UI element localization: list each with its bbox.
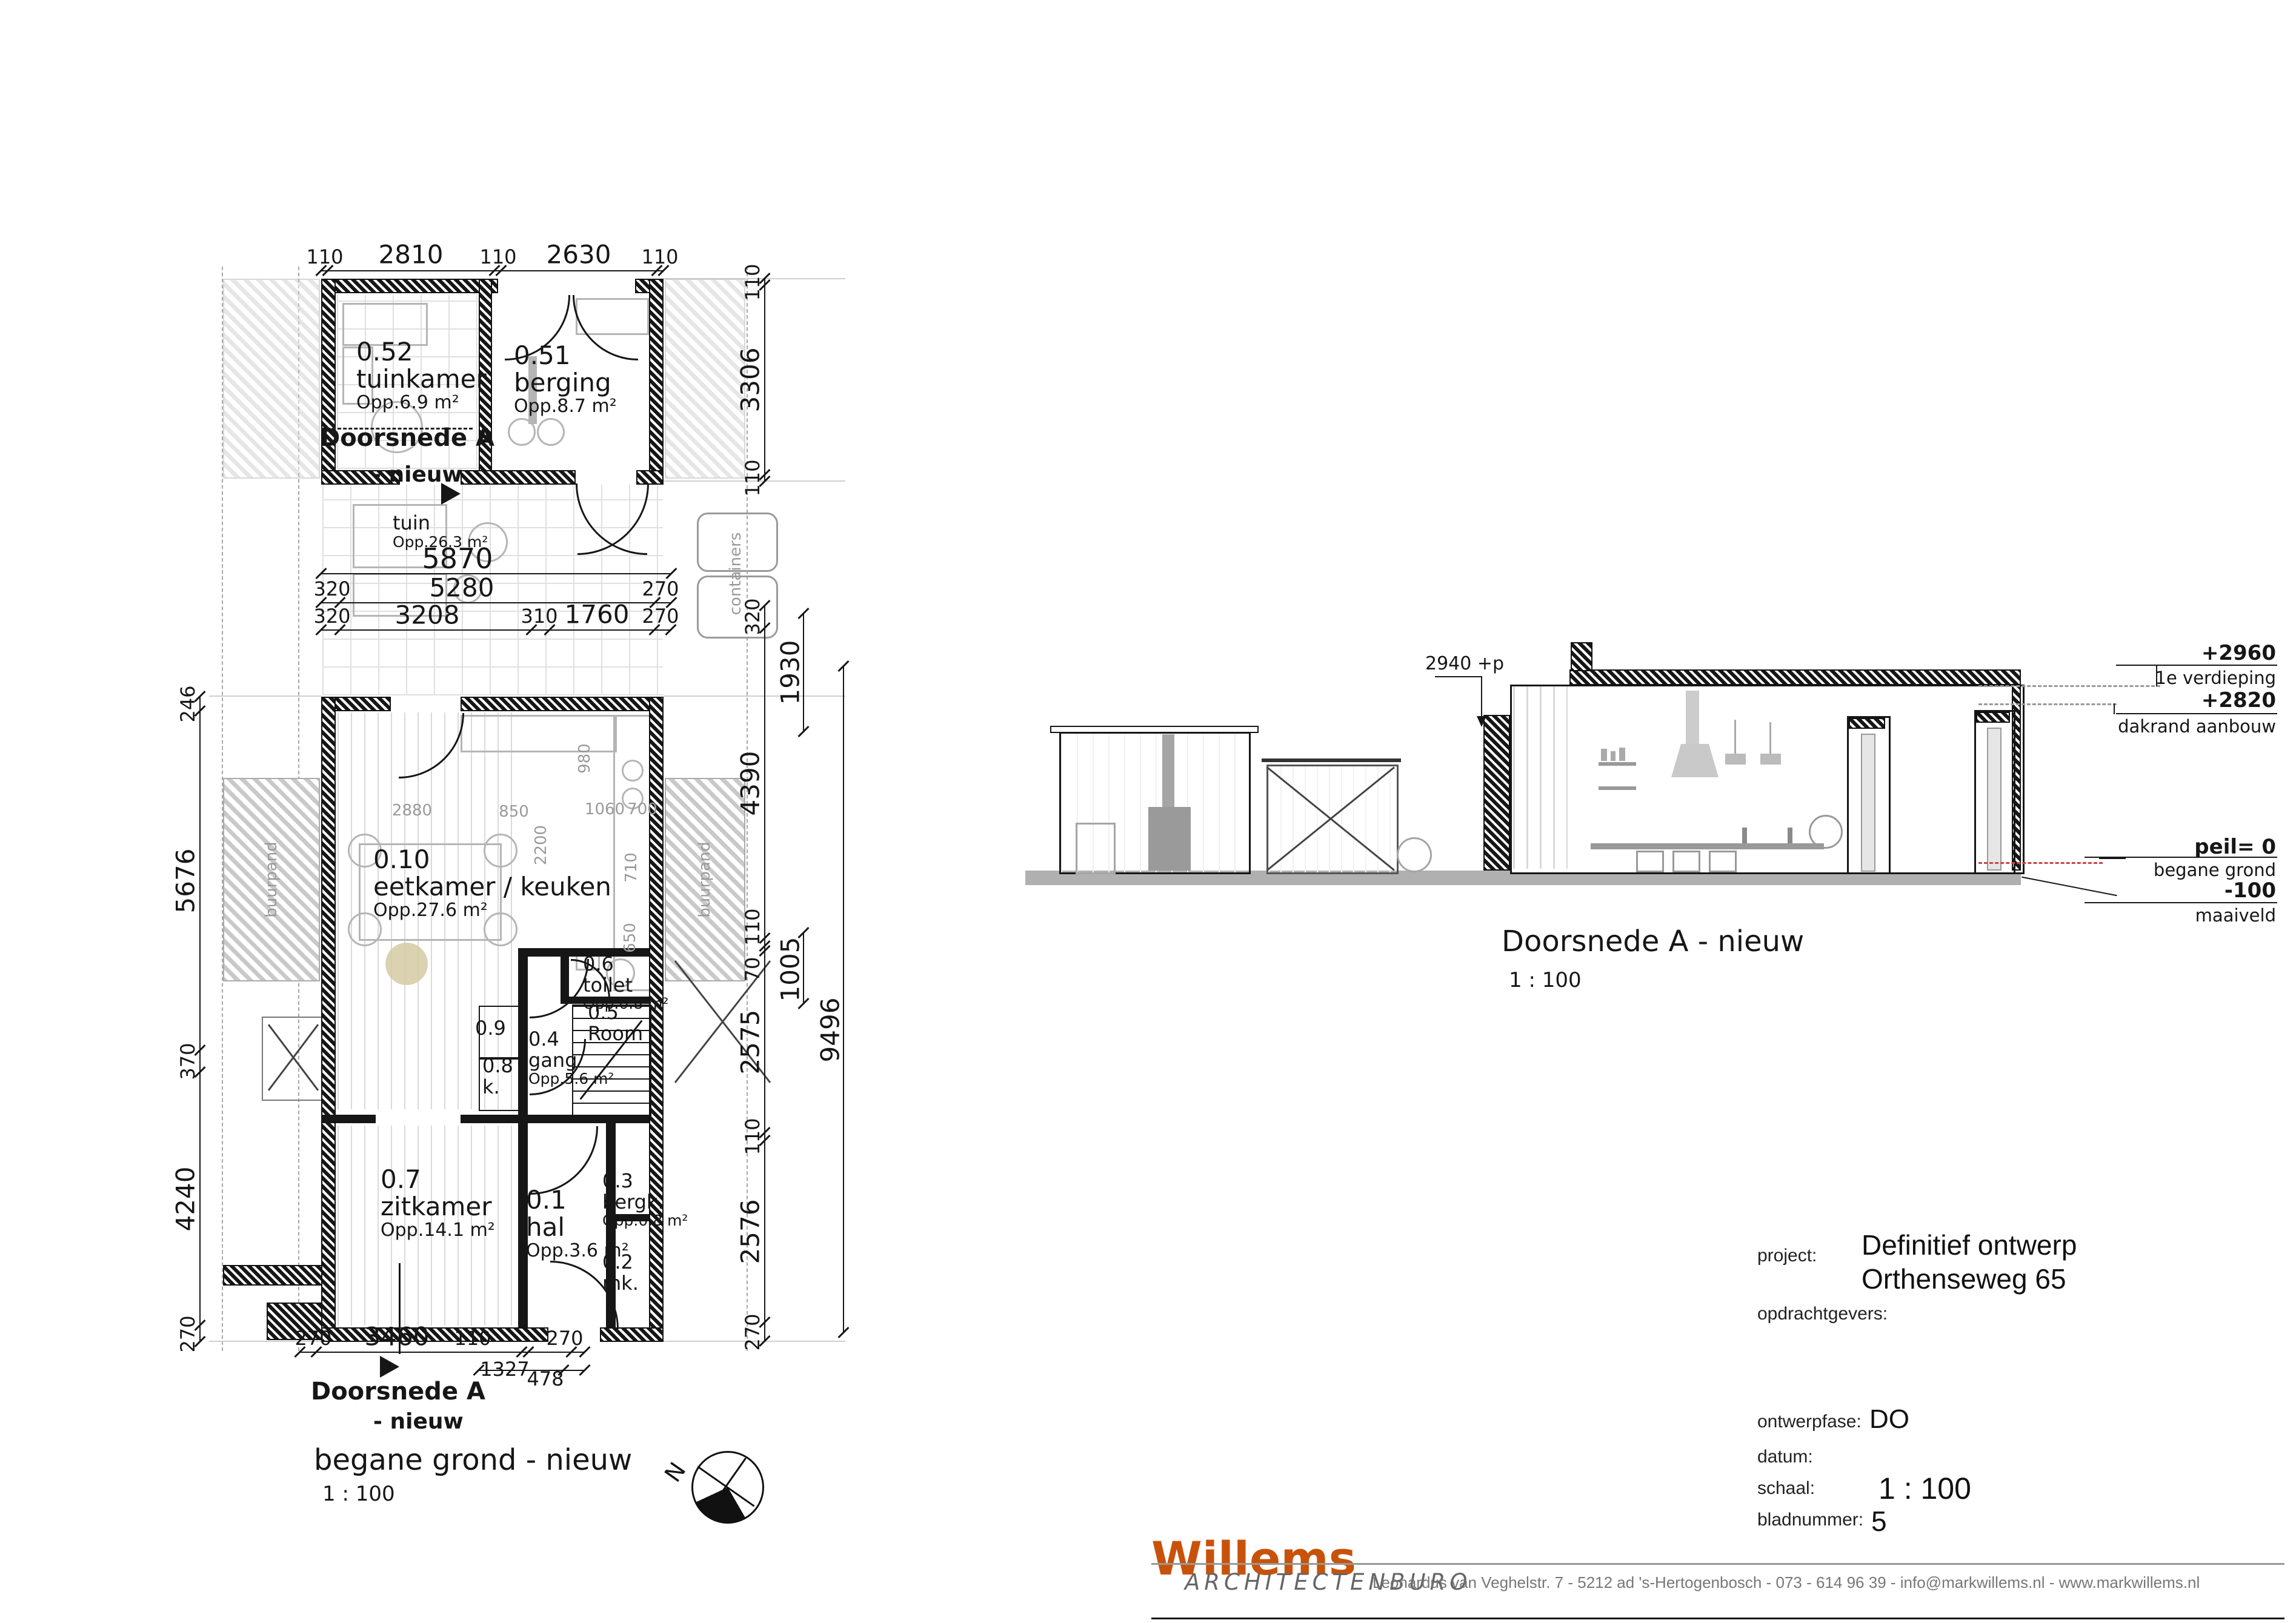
dim: 110 — [741, 1118, 764, 1155]
date-label: datum: — [1757, 1447, 1813, 1467]
stove-pipe — [1162, 734, 1174, 812]
buurpand-right-label: buurpand — [696, 841, 714, 918]
room-label-eetkamer: 0.10 eetkamer / keuken Opp.27.6 m² — [373, 846, 611, 920]
dim: 110 — [454, 1327, 491, 1350]
clients-label: opdrachtgevers: — [1757, 1304, 1888, 1324]
room-id: 0.8 — [482, 1055, 513, 1077]
room-id: 0.6 — [583, 954, 668, 975]
leader-line — [1481, 676, 1482, 717]
dim: 110 — [741, 459, 764, 496]
room-name: bergk. — [602, 1192, 688, 1213]
wall — [321, 279, 336, 485]
dim-gray: 710 — [622, 852, 641, 883]
stool — [1709, 851, 1737, 872]
level-value: +2820 — [2109, 688, 2276, 712]
sheet-label: bladnummer: — [1757, 1510, 1863, 1530]
level-label: 1e verdieping — [2109, 668, 2276, 688]
dim-tick — [516, 1346, 527, 1358]
dim: 110 — [306, 245, 343, 268]
dim: 9496 — [816, 998, 845, 1063]
wall — [321, 697, 336, 1342]
room-label-zitkamer: 0.7 zitkamer Opp.14.1 m² — [381, 1166, 495, 1240]
shed-roof — [1262, 758, 1401, 762]
room-label-gang: 0.4 gang Opp.5.6 m² — [528, 1029, 614, 1087]
dim: 270 — [741, 1313, 764, 1350]
wall — [461, 697, 664, 711]
dim: 5280 — [430, 573, 494, 603]
room-name: berging — [514, 369, 617, 396]
hood-duct — [1686, 691, 1699, 744]
room-label-tuinkamer: 0.52 tuinkamer Opp.6.9 m² — [356, 338, 487, 413]
section-marker-label2: - nieuw — [373, 1409, 464, 1434]
room-id: 0.5 — [588, 1002, 643, 1023]
dim: 320 — [313, 577, 350, 600]
wall — [461, 470, 576, 485]
dim: 1327 — [480, 1358, 529, 1381]
dim-line — [321, 573, 671, 574]
dim: 3460 — [365, 1322, 430, 1352]
room-name: tuin — [393, 513, 488, 534]
extractor-hood — [1671, 744, 1719, 777]
buurpand-left-label: buurpand — [262, 841, 281, 918]
dim: 320 — [741, 598, 764, 635]
bottle — [1611, 751, 1616, 761]
pendant-lamp — [1760, 754, 1781, 765]
stool — [1672, 851, 1700, 872]
section-arrow-icon — [380, 1356, 399, 1378]
dim: 270 — [642, 577, 679, 600]
dim: 3208 — [395, 600, 460, 630]
plan-scale: 1 : 100 — [322, 1482, 395, 1506]
shelf — [1599, 762, 1636, 766]
level-line-2820 — [1978, 703, 2117, 705]
section-marker-label: Doorsnede A — [320, 424, 494, 452]
dim: 2576 — [736, 1200, 765, 1264]
level-line-peil — [1978, 862, 2103, 864]
room-name: toilet — [583, 975, 668, 996]
room-name: eetkamer / keuken — [373, 873, 611, 900]
room-name: k. — [482, 1077, 513, 1098]
neighbour-wall — [223, 279, 320, 479]
dim: 1760 — [565, 600, 630, 629]
stool — [1636, 851, 1664, 872]
room-name: gang — [528, 1050, 614, 1071]
dim: 110 — [641, 245, 678, 268]
leader-arrow-icon — [1477, 716, 1486, 727]
room-area: Opp.14.1 m² — [381, 1221, 495, 1240]
dim: 110 — [741, 908, 764, 945]
dim: 478 — [527, 1367, 564, 1390]
dim-gray: 700 — [627, 800, 657, 818]
north-label: N — [659, 1458, 691, 1487]
dim: 370 — [176, 1043, 199, 1080]
neighbour-wall — [665, 279, 745, 479]
dim-tick — [837, 1327, 849, 1338]
dim: 110 — [479, 245, 516, 268]
room-id: 0.3 — [602, 1170, 688, 1192]
cut-wall — [1483, 715, 1510, 871]
project-value-line1: Definitief ontwerp — [1862, 1229, 2077, 1261]
dim: 4390 — [736, 751, 765, 816]
dim-tick — [579, 1364, 590, 1376]
dim-gray: 850 — [499, 803, 529, 821]
dim-tick — [837, 660, 849, 672]
room-label-bergkast: 0.3 bergk. Opp.0.8 m² — [602, 1170, 688, 1229]
room-area: Opp.26.3 m² — [393, 534, 488, 550]
phase-value: DO — [1869, 1404, 1909, 1435]
dim: 1930 — [776, 640, 805, 705]
dim: 1005 — [776, 937, 805, 1002]
room-area: Opp.27.6 m² — [373, 901, 611, 920]
level-label: maaiveld — [2109, 905, 2276, 926]
door-panel — [1987, 728, 2002, 871]
plant — [385, 943, 428, 985]
room-area: Opp.0.8 m² — [602, 1212, 688, 1229]
room-area: Opp.5.6 m² — [528, 1070, 614, 1087]
wall — [600, 1327, 664, 1342]
phase-label: ontwerpfase: — [1757, 1412, 1862, 1432]
bottle — [1619, 748, 1625, 761]
neighbour-wall-fragment — [223, 1265, 329, 1286]
dim: 270 — [176, 1315, 199, 1352]
level-underline — [2085, 857, 2277, 858]
room-id: 0.7 — [381, 1166, 495, 1193]
door-elevation — [1974, 710, 2015, 874]
sheet-value: 5 — [1871, 1505, 1887, 1538]
pendant-cord — [1734, 720, 1736, 754]
shelf — [1599, 786, 1636, 790]
level-underline — [2116, 665, 2277, 666]
dim-gray: 2880 — [392, 802, 432, 820]
porch-left — [262, 1017, 325, 1101]
dim: 5676 — [171, 849, 201, 914]
wall — [321, 279, 498, 293]
level-underline — [2116, 713, 2277, 714]
plant-elevation — [1809, 815, 1843, 849]
room-id: 0.2 — [602, 1252, 639, 1273]
dim: 246 — [176, 685, 199, 722]
room-name: zitkamer — [381, 1193, 495, 1220]
room-area: Opp.6.9 m² — [356, 393, 487, 413]
room-label-tuin: tuin Opp.26.3 m² — [393, 513, 488, 550]
section-title: Doorsnede A - nieuw — [1502, 924, 1804, 958]
shed-elevation — [1266, 765, 1399, 874]
bike-wheel — [537, 418, 565, 446]
kitchen-sink — [622, 760, 644, 782]
dim: 270 — [294, 1327, 331, 1350]
pendant-lamp — [1725, 754, 1746, 765]
dim-line — [321, 629, 671, 631]
glazing-mullions — [1513, 686, 1568, 869]
wall — [518, 948, 528, 1327]
dim: 2630 — [547, 240, 611, 270]
project-value-line2: Orthenseweg 65 — [1862, 1263, 2066, 1295]
wall — [321, 1327, 548, 1342]
dim-gray: 1060 — [585, 800, 625, 818]
door-panel — [1861, 734, 1875, 872]
dim-line — [300, 1352, 585, 1353]
level-value: +2960 — [2109, 641, 2276, 665]
level-underline — [2085, 902, 2277, 903]
wall — [321, 1115, 376, 1123]
room-id: 0.10 — [373, 846, 611, 873]
dim: 2810 — [379, 240, 444, 270]
dim: 70 — [741, 957, 764, 982]
dim-tick — [797, 608, 809, 619]
room-id: 0.51 — [514, 342, 617, 369]
plan-title: begane grond - nieuw — [314, 1443, 632, 1477]
wall — [636, 470, 664, 485]
drawing-sheet: buurpand buurpand — [0, 0, 2296, 1623]
room-area: Opp.8.7 m² — [514, 397, 617, 416]
footer-bottom-line — [1151, 1618, 2284, 1619]
counter — [1591, 843, 1824, 849]
dim-line — [321, 270, 664, 271]
roof-slab — [1569, 669, 2021, 685]
scale-label: schaal: — [1757, 1478, 1815, 1499]
level-label: dakrand aanbouw — [2109, 716, 2276, 737]
door-jamb — [1849, 718, 1885, 729]
shrub — [1397, 837, 1432, 872]
footer-divider — [1151, 1563, 2284, 1565]
garden-room-roof — [1050, 726, 1259, 733]
bike-wheel — [508, 418, 536, 446]
dim: 270 — [642, 605, 679, 628]
section-arrow-icon — [441, 483, 461, 505]
dim: 310 — [521, 605, 557, 628]
tap — [1742, 828, 1747, 843]
parapet — [1571, 642, 1592, 671]
door-jamb — [1976, 712, 2010, 723]
reference-line — [664, 695, 845, 697]
dim: 270 — [546, 1327, 583, 1350]
dim: 320 — [313, 605, 350, 628]
wall — [461, 1115, 518, 1123]
dim-tick — [797, 726, 809, 737]
room-id: 0.52 — [356, 338, 487, 365]
dim: 3306 — [736, 348, 765, 413]
level-value: -100 — [2109, 878, 2276, 903]
bottle — [1601, 749, 1607, 761]
room-id: 0.4 — [528, 1029, 614, 1050]
dim: 2575 — [736, 1010, 765, 1075]
level-value: peil= 0 — [2109, 835, 2276, 859]
room-name: mk. — [602, 1273, 639, 1294]
room-name: tuinkamer — [356, 365, 487, 393]
dim-gray: 650 — [621, 923, 639, 953]
wall — [649, 279, 664, 485]
section-scale: 1 : 100 — [1509, 968, 1582, 992]
dim: 4240 — [171, 1167, 201, 1232]
chair-elevation — [1076, 823, 1116, 874]
tap — [1788, 828, 1792, 843]
dim: 110 — [741, 264, 764, 300]
level-label: begane grond — [2109, 860, 2276, 880]
section-marker-label: Doorsnede A — [311, 1378, 485, 1406]
leader-line — [1435, 676, 1482, 677]
room-id: 0.9 — [475, 1018, 506, 1039]
leader-line — [2021, 877, 2117, 896]
door-elevation — [1847, 716, 1891, 874]
scale-value: 1 : 100 — [1878, 1471, 1971, 1506]
pendant-cord — [1769, 722, 1771, 754]
section-note: 2940 +p — [1425, 653, 1504, 674]
project-label: project: — [1757, 1246, 1817, 1266]
dim-gray: 980 — [576, 743, 594, 774]
dim-line — [199, 697, 201, 1342]
room-label-kast9: 0.9 — [475, 1018, 506, 1039]
room-label-meterkast: 0.2 mk. — [602, 1252, 639, 1293]
room-label-berging: 0.51 berging Opp.8.7 m² — [514, 342, 617, 416]
reference-line — [209, 695, 321, 697]
footer-address: Leonardus van Veghelstr. 7 - 5212 ad 's-… — [1373, 1573, 2200, 1592]
room-label-kast8: 0.8 k. — [482, 1055, 513, 1097]
stove — [1148, 807, 1191, 871]
